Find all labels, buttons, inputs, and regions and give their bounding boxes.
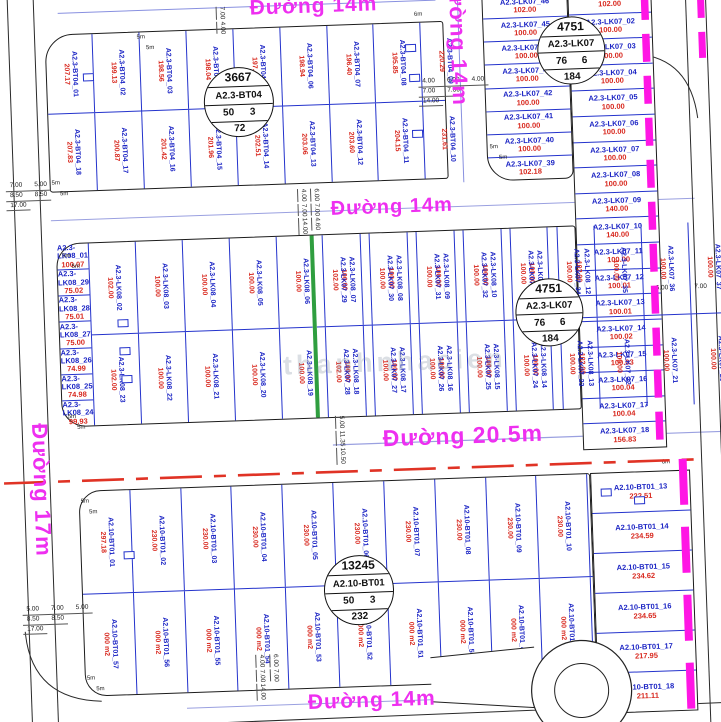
boundary-magenta-lower bbox=[683, 459, 692, 719]
road-label-vertical: Đường 14m bbox=[443, 0, 474, 106]
cadastral-map: A2.3-BT04_01207.17A2.3-BT04_02199.13A2.3… bbox=[0, 0, 721, 722]
road-label-bottom: Đường 14m bbox=[307, 687, 436, 715]
map-sheet: A2.3-BT04_01207.17A2.3-BT04_02199.13A2.3… bbox=[0, 0, 721, 722]
road-label-middle: Đường 14m bbox=[330, 194, 453, 221]
road-label-left: Đường 17m bbox=[26, 423, 57, 557]
boundary-magenta-upper bbox=[644, 0, 660, 450]
planning-boundary-red bbox=[4, 459, 698, 483]
road-label-boulevard: Đường 20.5m bbox=[382, 420, 543, 453]
boundary-magenta-corner bbox=[700, 0, 702, 58]
